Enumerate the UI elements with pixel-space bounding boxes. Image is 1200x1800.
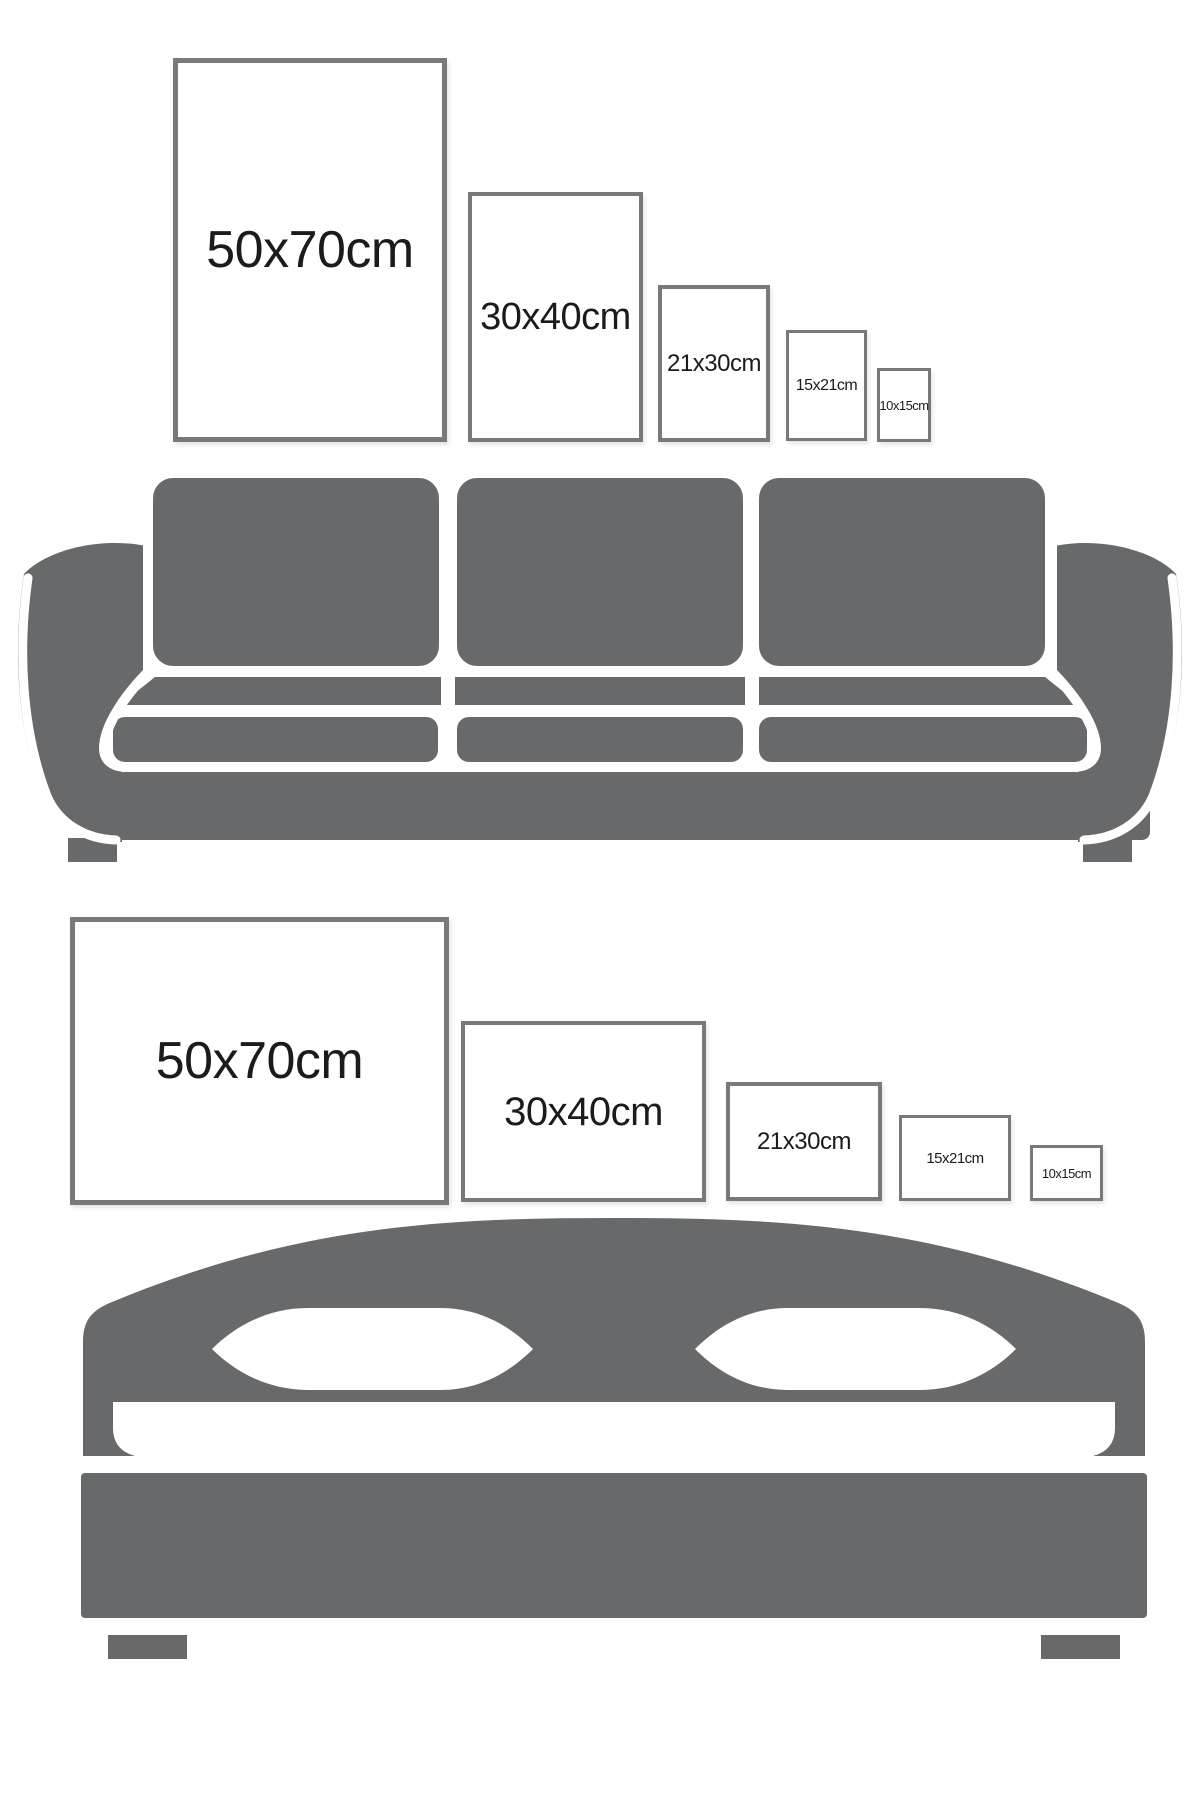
frame-size-label: 21x30cm bbox=[667, 352, 761, 376]
frame-size-label: 30x40cm bbox=[504, 1092, 663, 1132]
frame-size-label: 10x15cm bbox=[879, 399, 928, 412]
sofa-icon bbox=[0, 460, 1200, 870]
sofa-seat-cushion bbox=[113, 717, 438, 762]
frame-landscape-15x21: 15x21cm bbox=[899, 1115, 1011, 1201]
frame-portrait-21x30: 21x30cm bbox=[658, 285, 770, 442]
sofa-back-cushion bbox=[153, 478, 439, 666]
frame-landscape-50x70: 50x70cm bbox=[70, 917, 449, 1205]
frame-portrait-15x21: 15x21cm bbox=[786, 330, 867, 441]
sofa-seat-deck bbox=[120, 677, 1080, 705]
frame-size-label: 50x70cm bbox=[206, 224, 414, 276]
bed-icon bbox=[0, 1210, 1200, 1680]
frame-landscape-10x15: 10x15cm bbox=[1030, 1145, 1103, 1201]
bed-post bbox=[1093, 1400, 1145, 1456]
frame-landscape-21x30: 21x30cm bbox=[726, 1082, 882, 1201]
frame-size-label: 21x30cm bbox=[757, 1130, 851, 1154]
sofa-base bbox=[95, 772, 1150, 840]
frame-portrait-10x15: 10x15cm bbox=[877, 368, 931, 442]
sofa-back-cushion bbox=[457, 478, 743, 666]
frame-size-label: 15x21cm bbox=[796, 378, 857, 394]
sofa-seat-cushion bbox=[457, 717, 743, 762]
frame-size-label: 15x21cm bbox=[926, 1151, 983, 1166]
bed-base bbox=[81, 1473, 1147, 1618]
bed-pillow bbox=[695, 1308, 1016, 1390]
frame-size-label: 30x40cm bbox=[480, 298, 631, 336]
frame-size-label: 50x70cm bbox=[156, 1035, 364, 1087]
poster-size-guide: 50x70cm 30x40cm 21x30cm 15x21cm 10x15cm bbox=[0, 0, 1200, 1800]
frame-portrait-50x70: 50x70cm bbox=[173, 58, 447, 442]
bed-pillow bbox=[212, 1308, 533, 1390]
bed-foot bbox=[108, 1635, 187, 1659]
bed-post bbox=[83, 1400, 135, 1456]
frame-size-label: 10x15cm bbox=[1042, 1167, 1091, 1180]
bed-headboard bbox=[83, 1218, 1145, 1402]
frame-portrait-30x40: 30x40cm bbox=[468, 192, 643, 442]
bed-foot bbox=[1041, 1635, 1120, 1659]
sofa-seat-cushion bbox=[759, 717, 1087, 762]
frame-landscape-30x40: 30x40cm bbox=[461, 1021, 706, 1202]
sofa-back-cushion bbox=[759, 478, 1045, 666]
